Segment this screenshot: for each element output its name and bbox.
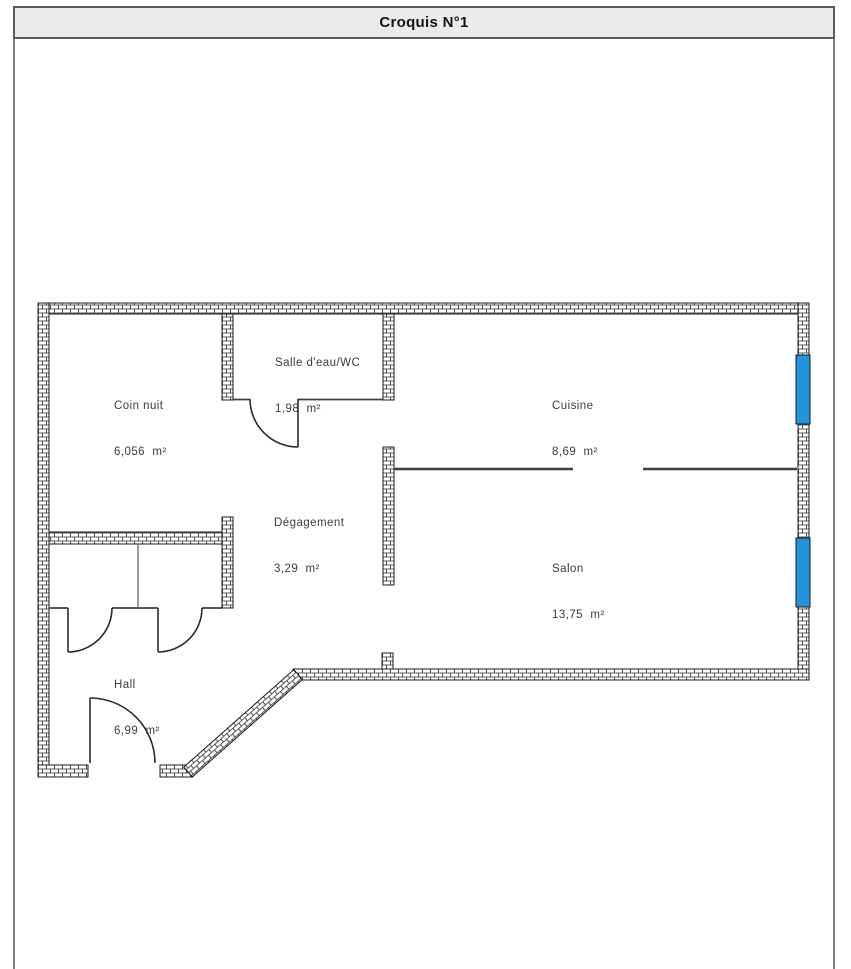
room-name: Coin nuit (114, 400, 167, 412)
wall-top (38, 303, 809, 314)
room-area: 3,29 m² (274, 563, 344, 575)
room-label-salon: Salon 13,75 m² (552, 539, 605, 633)
room-area: 13,75 m² (552, 609, 605, 621)
room-label-coin-nuit: Coin nuit 6,056 m² (114, 376, 167, 470)
wall-degagement-east (383, 447, 394, 585)
wall-bathroom-west (222, 314, 233, 400)
door-closet-right (158, 608, 202, 652)
room-label-hall: Hall 6,99 m² (114, 655, 160, 749)
door-closet-left (68, 608, 112, 652)
room-area: 6,056 m² (114, 446, 167, 458)
room-name: Dégagement (274, 517, 344, 529)
wall-hall-bottom-left (38, 765, 88, 777)
wall-bathroom-east (383, 314, 394, 400)
room-area: 6,99 m² (114, 725, 160, 737)
room-name: Salon (552, 563, 605, 575)
floor-plan-drawing (0, 0, 851, 950)
wall-closet-right (222, 517, 233, 608)
room-label-salle-deau: Salle d'eau/WC 1,98 m² (275, 333, 360, 427)
room-area: 8,69 m² (552, 446, 598, 458)
window-salon (796, 538, 810, 607)
room-label-degagement: Dégagement 3,29 m² (274, 493, 344, 587)
room-name: Salle d'eau/WC (275, 357, 360, 369)
wall-left (38, 303, 49, 777)
window-cuisine (796, 355, 810, 424)
croquis-page: { "title": "Croquis N°1", "floor_plan": … (0, 0, 851, 950)
wall-diagonal (184, 670, 303, 777)
room-area: 1,98 m² (275, 403, 360, 415)
room-name: Hall (114, 679, 160, 691)
wall-closet-top (49, 532, 222, 544)
room-name: Cuisine (552, 400, 598, 412)
wall-stub-salon (382, 653, 393, 669)
wall-salon-bottom (293, 669, 809, 680)
room-label-cuisine: Cuisine 8,69 m² (552, 376, 598, 470)
